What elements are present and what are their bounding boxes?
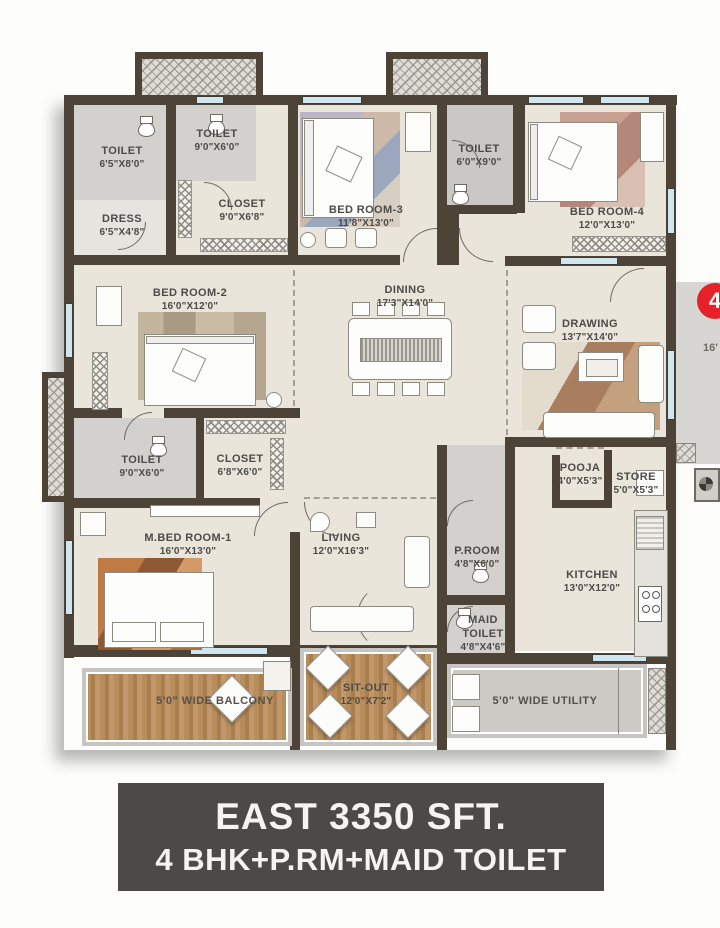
- window: [65, 303, 73, 358]
- room-label-bedroom-2: BED ROOM-2 16'0"X12'0": [153, 287, 227, 313]
- wall: [604, 450, 612, 508]
- sofa: [310, 606, 414, 632]
- open-plan-divider: [506, 270, 508, 435]
- room-label-living: LIVING 12'0"X16'3": [313, 532, 369, 558]
- window: [528, 96, 584, 104]
- partial-dimension-text: 16': [703, 342, 718, 354]
- bed-pillow: [160, 622, 204, 642]
- room-label-dining: DINING 17'3"X14'0": [377, 284, 433, 310]
- room-label-drawing: DRAWING 13'7"X14'0": [562, 318, 618, 344]
- room-label-store: STORE 5'0"X5'3": [614, 471, 659, 497]
- room-label-bedroom-4: BED ROOM-4 12'0"X13'0": [570, 206, 644, 232]
- shaft-hatch: [676, 443, 696, 463]
- room-label-p-room: P.ROOM 4'8"X6'0": [454, 545, 500, 571]
- wall: [290, 532, 300, 657]
- washer: [452, 674, 480, 700]
- bed-footboard: [146, 336, 254, 344]
- open-plan-divider: [293, 270, 295, 406]
- wall: [64, 255, 299, 265]
- exhaust-fan-icon: [694, 468, 720, 502]
- plan-title-banner: EAST 3350 SFT. 4 BHK+P.RM+MAID TOILET: [118, 783, 604, 891]
- dining-table-runner: [360, 338, 442, 362]
- window: [667, 188, 675, 234]
- banner-area-text: EAST 3350 SFT.: [215, 796, 507, 838]
- floor-plan-page: TOILET 6'5"X8'0" DRESS 6'5"X4'8" TOILET …: [0, 0, 720, 928]
- room-label-dress: DRESS 6'5"X4'8": [100, 213, 145, 239]
- plant-stand: [310, 512, 330, 532]
- wardrobe: [92, 352, 108, 410]
- room-label-toilet-4: TOILET 6'0"X9'0": [457, 143, 502, 169]
- room-label-pooja: POOJA 4'0"X5'3": [558, 462, 603, 488]
- coffee-table-inner: [586, 359, 618, 377]
- wc-icon: [138, 122, 155, 137]
- window: [65, 540, 73, 615]
- pooja-divider: [556, 447, 604, 449]
- wall: [447, 205, 517, 214]
- room-label-toilet-3: TOILET 9'0"X6'0": [120, 454, 165, 480]
- shaft-hatch: [648, 668, 666, 734]
- wardrobe: [178, 180, 192, 238]
- balcony-label: 5'0" WIDE BALCONY: [156, 695, 274, 707]
- wc-icon: [452, 190, 469, 205]
- dining-chair: [352, 302, 370, 316]
- wall: [437, 213, 459, 265]
- open-plan-divider: [304, 497, 436, 499]
- stool: [266, 392, 282, 408]
- room-label-master-bedroom: M.BED ROOM-1 16'0"X13'0": [144, 532, 231, 558]
- wardrobe: [270, 438, 284, 490]
- chair: [355, 228, 377, 248]
- dining-chair: [402, 382, 420, 396]
- side-table: [80, 512, 106, 536]
- armchair: [522, 342, 556, 370]
- window: [196, 96, 224, 104]
- wardrobe: [572, 236, 666, 252]
- room-label-bedroom-3: BED ROOM-3 11'8"X13'0": [329, 204, 403, 230]
- wardrobe: [206, 420, 286, 434]
- wall: [164, 408, 300, 418]
- wall: [513, 95, 525, 213]
- bed-headboard: [304, 120, 314, 216]
- dining-chair: [377, 382, 395, 396]
- room-label-maid-toilet: MAID TOILET 4'8"X4'6": [458, 614, 508, 654]
- room-label-toilet-2: TOILET 9'0"X6'0": [195, 128, 240, 154]
- sofa: [543, 412, 655, 438]
- dining-chair: [352, 382, 370, 396]
- window: [600, 96, 650, 104]
- wardrobe-shelf: [150, 505, 260, 517]
- shaft-hatch: [263, 661, 291, 691]
- sofa: [404, 536, 430, 588]
- wall: [166, 95, 176, 265]
- room-label-sitout: SIT-OUT 12'0"X7'2": [341, 682, 392, 708]
- wardrobe: [200, 238, 288, 252]
- window: [667, 350, 675, 420]
- dresser: [640, 112, 664, 162]
- room-label-closet-1: CLOSET 9'0"X6'8": [218, 198, 265, 224]
- wall: [437, 95, 447, 215]
- side-table: [300, 232, 316, 248]
- wall: [505, 437, 676, 447]
- dining-chair: [427, 382, 445, 396]
- stove-icon: [638, 586, 662, 622]
- room-label-toilet-1: TOILET 6'5"X8'0": [100, 145, 145, 171]
- bed-headboard: [530, 124, 538, 200]
- wall: [288, 255, 400, 265]
- utility-label: 5'0" WIDE UTILITY: [493, 695, 598, 707]
- window: [560, 257, 618, 265]
- utility-divider: [618, 668, 619, 734]
- wall: [437, 640, 447, 750]
- wall: [437, 445, 447, 660]
- wall: [64, 95, 677, 105]
- chair: [325, 228, 347, 248]
- bed-pillow: [112, 622, 156, 642]
- balcony-floor: [82, 668, 292, 746]
- banner-config-text: 4 BHK+P.RM+MAID TOILET: [155, 842, 566, 878]
- wall: [552, 500, 610, 508]
- window: [302, 96, 362, 104]
- dresser: [405, 112, 431, 152]
- wall: [196, 418, 204, 498]
- armchair: [522, 305, 556, 333]
- sink: [636, 516, 664, 550]
- utility-sink: [452, 706, 480, 732]
- wall: [288, 95, 298, 265]
- wall: [437, 595, 515, 605]
- sofa: [638, 345, 664, 403]
- room-label-closet-2: CLOSET 6'8"X6'0": [216, 453, 263, 479]
- side-table: [356, 512, 376, 528]
- room-label-kitchen: KITCHEN 13'0"X12'0": [564, 569, 620, 595]
- dresser: [96, 286, 122, 326]
